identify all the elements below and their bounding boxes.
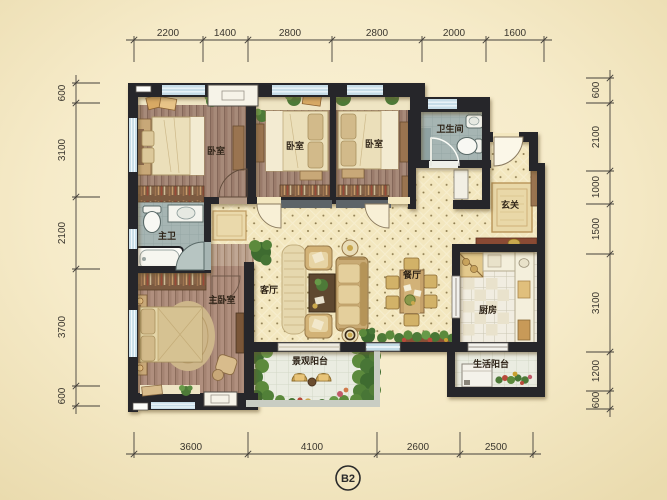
svg-text:B2: B2 [341, 473, 355, 485]
svg-text:1600: 1600 [504, 28, 527, 39]
svg-text:1500: 1500 [591, 217, 602, 240]
svg-text:餐厅: 餐厅 [402, 269, 421, 280]
svg-text:2500: 2500 [485, 442, 508, 453]
svg-text:主卧室: 主卧室 [208, 294, 235, 305]
svg-text:1000: 1000 [591, 175, 602, 198]
svg-text:3600: 3600 [180, 442, 203, 453]
svg-text:卫生间: 卫生间 [436, 123, 463, 134]
svg-text:600: 600 [57, 387, 68, 404]
svg-text:1400: 1400 [214, 28, 237, 39]
svg-text:600: 600 [591, 391, 602, 408]
svg-text:2800: 2800 [279, 28, 302, 39]
svg-text:卧室: 卧室 [286, 140, 304, 151]
svg-text:2600: 2600 [407, 442, 430, 453]
svg-text:玄关: 玄关 [501, 199, 519, 210]
svg-text:2000: 2000 [443, 28, 466, 39]
svg-text:2800: 2800 [366, 28, 389, 39]
svg-text:3700: 3700 [57, 315, 68, 338]
svg-text:客厅: 客厅 [259, 284, 278, 295]
svg-text:卧室: 卧室 [207, 145, 225, 156]
svg-text:生活阳台: 生活阳台 [473, 358, 509, 369]
svg-text:景观阳台: 景观阳台 [292, 355, 328, 366]
svg-text:厨房: 厨房 [479, 304, 497, 315]
svg-text:主卫: 主卫 [158, 230, 176, 241]
svg-text:2200: 2200 [157, 28, 180, 39]
svg-text:4100: 4100 [301, 442, 324, 453]
svg-text:3100: 3100 [591, 291, 602, 314]
svg-text:卧室: 卧室 [365, 138, 383, 149]
svg-text:600: 600 [591, 81, 602, 98]
svg-text:600: 600 [57, 84, 68, 101]
svg-text:2100: 2100 [591, 125, 602, 148]
svg-text:1200: 1200 [591, 359, 602, 382]
svg-text:2100: 2100 [57, 221, 68, 244]
svg-text:3100: 3100 [57, 138, 68, 161]
